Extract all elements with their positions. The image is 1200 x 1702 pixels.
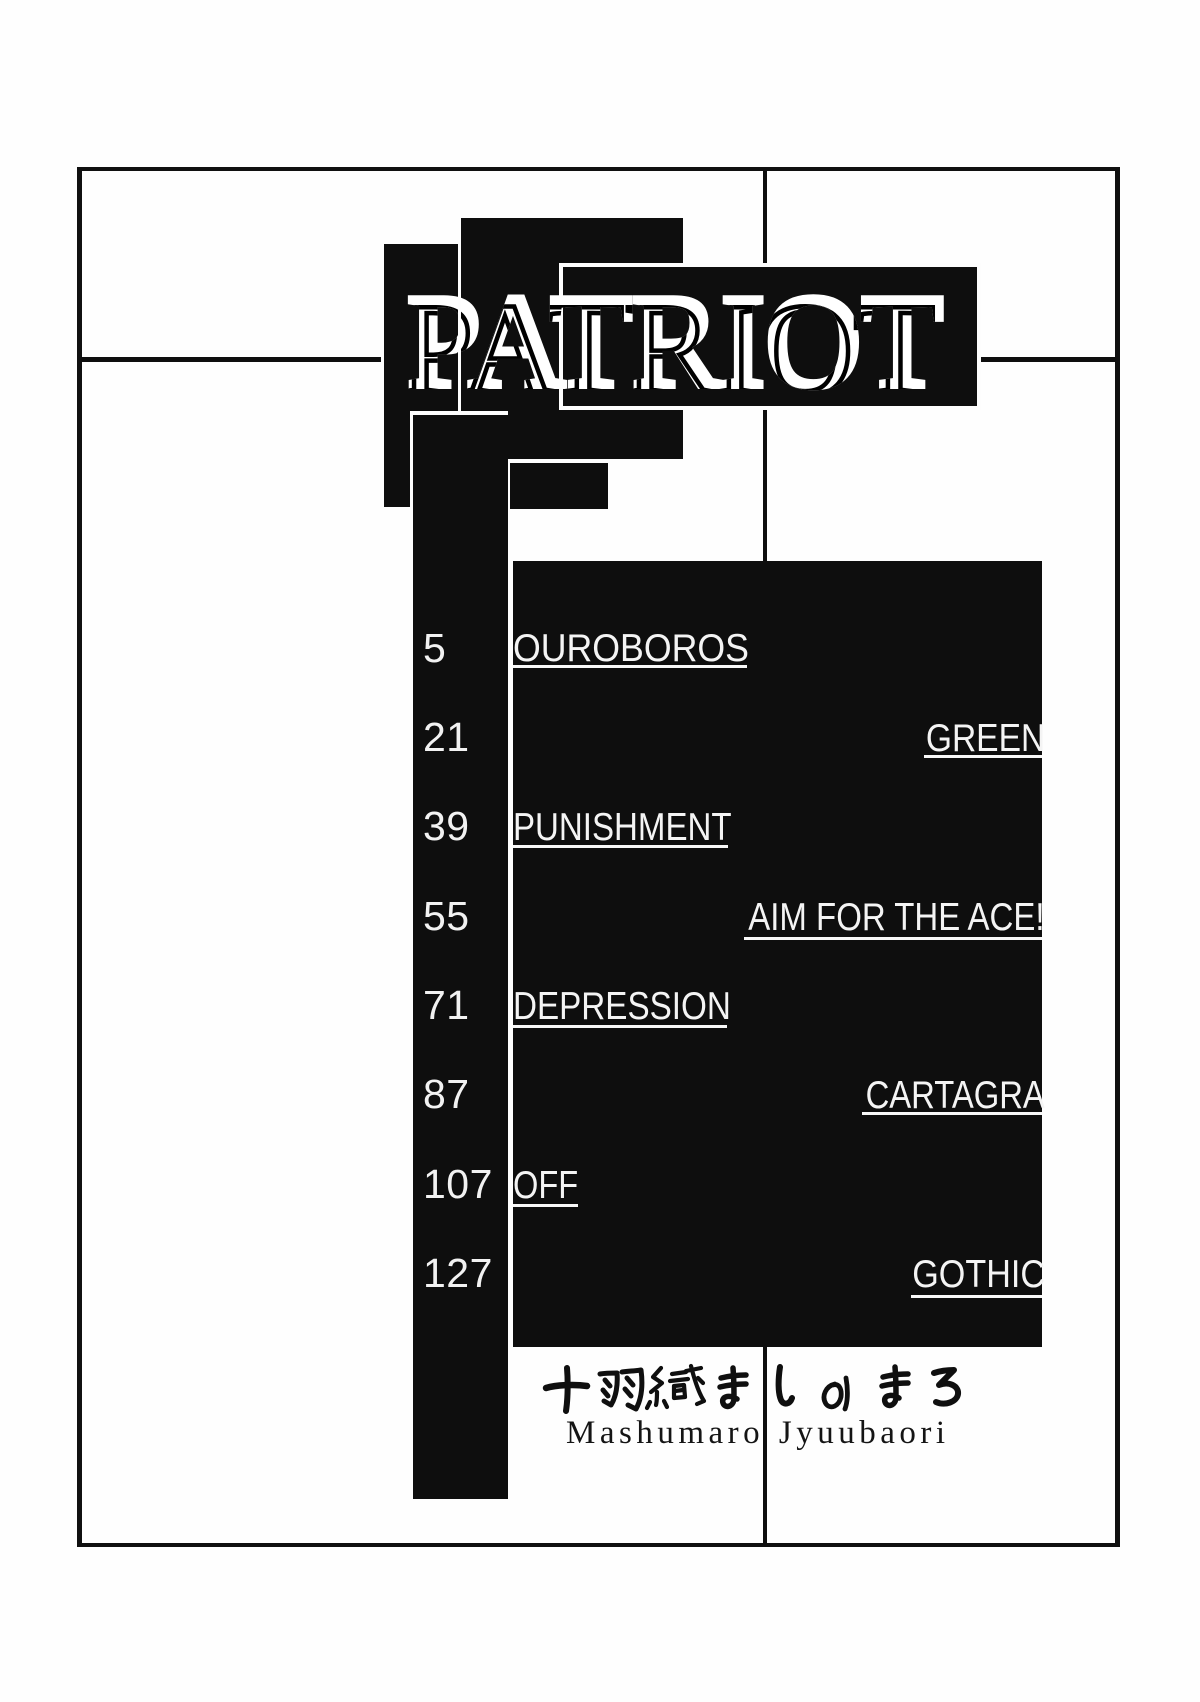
svg-text:PATRIOT: PATRIOT [399,276,935,404]
